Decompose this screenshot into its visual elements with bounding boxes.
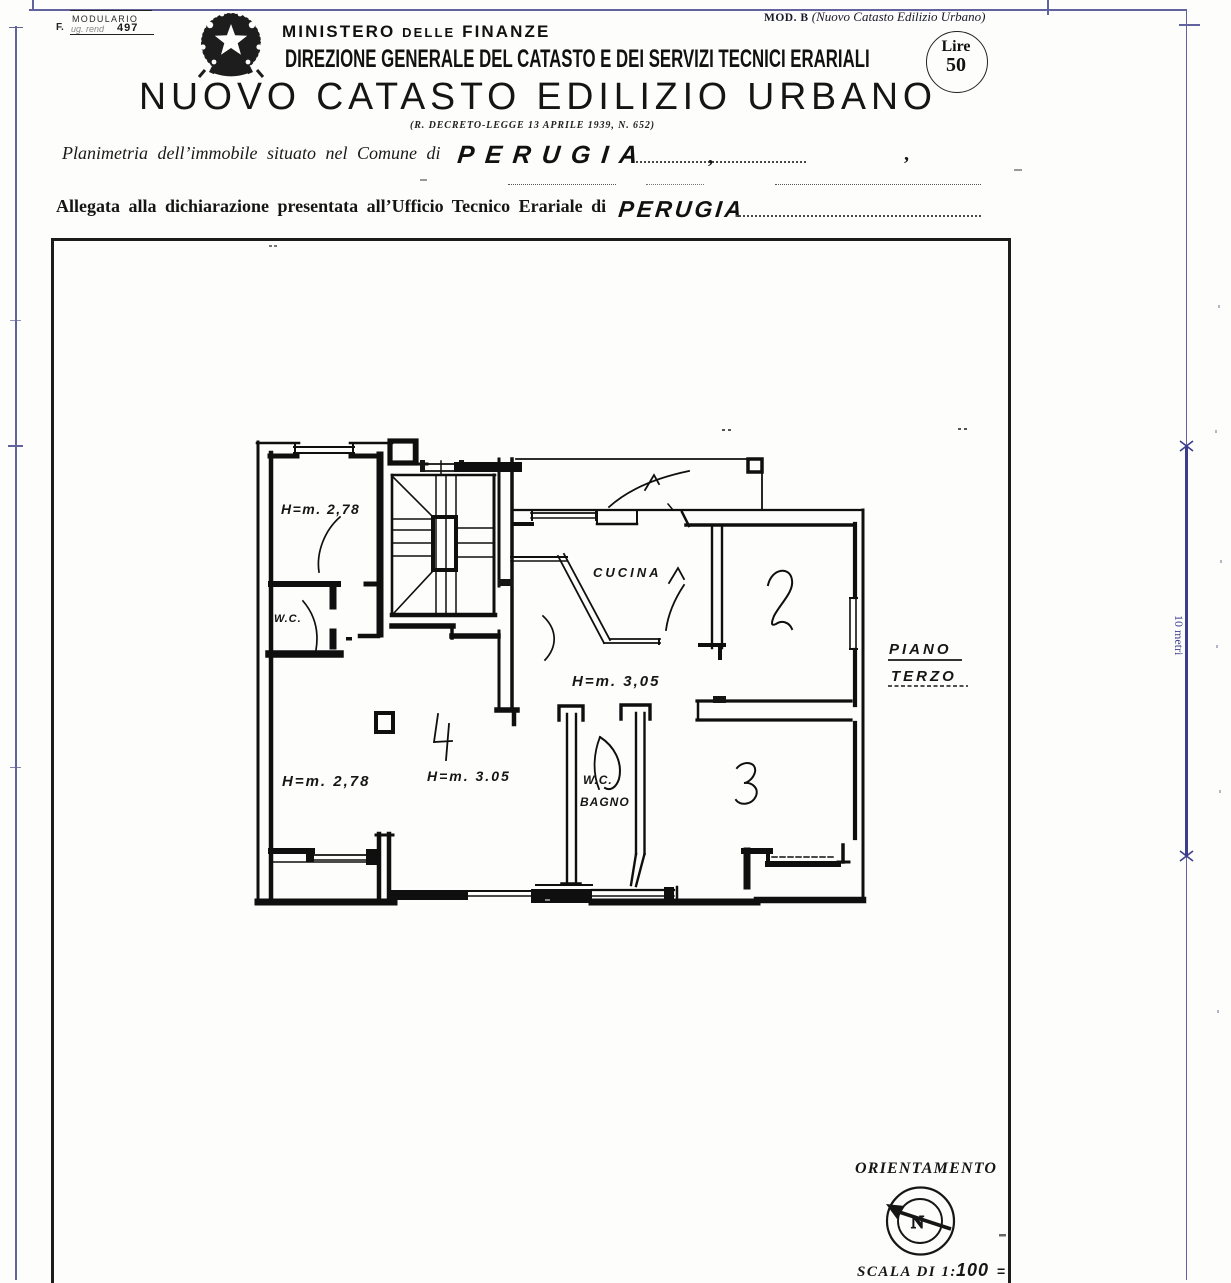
svg-text:SCALA DI 1:: SCALA DI 1: — [857, 1264, 957, 1280]
svg-text:=: = — [997, 1263, 1005, 1279]
svg-text:TERZO: TERZO — [891, 668, 957, 685]
svg-text:10 metri: 10 metri — [1172, 615, 1186, 656]
svg-text:H=m. 3,05: H=m. 3,05 — [572, 673, 660, 690]
svg-text:PIANO: PIANO — [889, 641, 952, 658]
svg-text:H=m. 2,78: H=m. 2,78 — [281, 501, 360, 517]
svg-text:100: 100 — [956, 1260, 989, 1280]
svg-text:H=m. 3.05: H=m. 3.05 — [427, 768, 511, 784]
svg-text:W.C.: W.C. — [274, 613, 302, 625]
svg-text:W.C.: W.C. — [583, 773, 613, 787]
svg-text:ORIENTAMENTO: ORIENTAMENTO — [855, 1160, 997, 1177]
svg-text:N: N — [911, 1212, 924, 1232]
svg-text:CUCINA: CUCINA — [593, 565, 662, 580]
svg-text:H=m. 2,78: H=m. 2,78 — [282, 773, 370, 790]
svg-text:BAGNO: BAGNO — [580, 795, 630, 809]
